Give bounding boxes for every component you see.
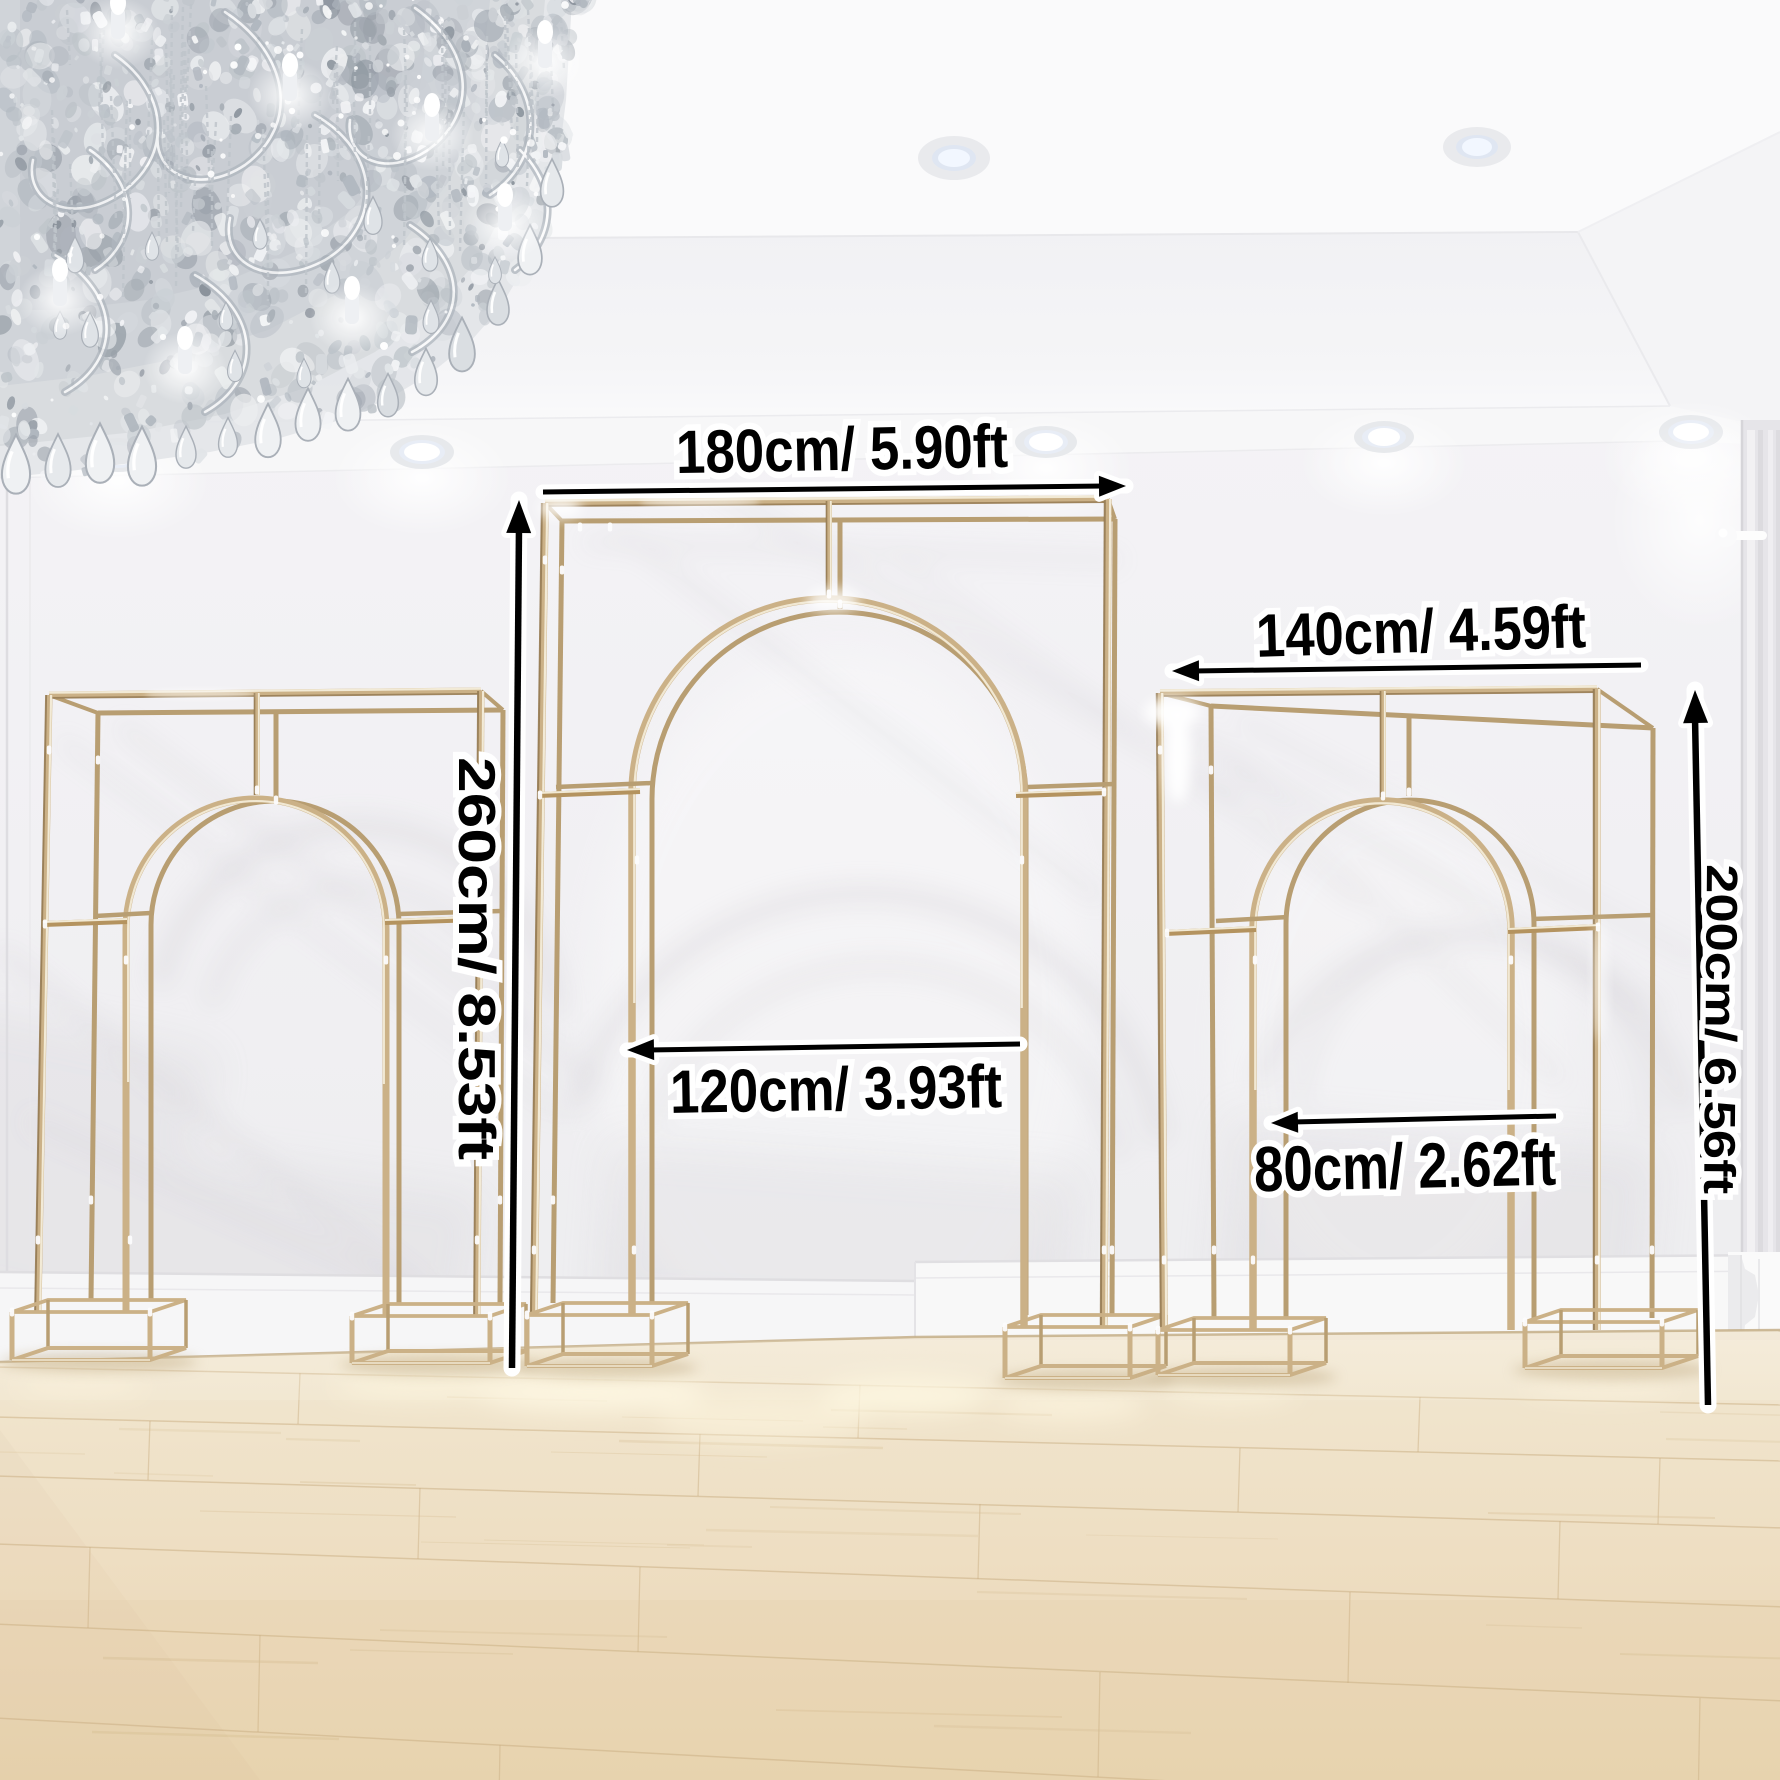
svg-text:180cm/ 5.90ft: 180cm/ 5.90ft xyxy=(675,412,1008,486)
svg-text:200cm/ 6.56ft: 200cm/ 6.56ft xyxy=(1694,864,1746,1195)
svg-text:260cm/ 8.53ft: 260cm/ 8.53ft xyxy=(447,757,505,1160)
svg-text:140cm/ 4.59ft: 140cm/ 4.59ft xyxy=(1255,592,1587,670)
svg-text:80cm/ 2.62ft: 80cm/ 2.62ft xyxy=(1253,1127,1557,1206)
svg-text:120cm/ 3.93ft: 120cm/ 3.93ft xyxy=(669,1052,1002,1126)
